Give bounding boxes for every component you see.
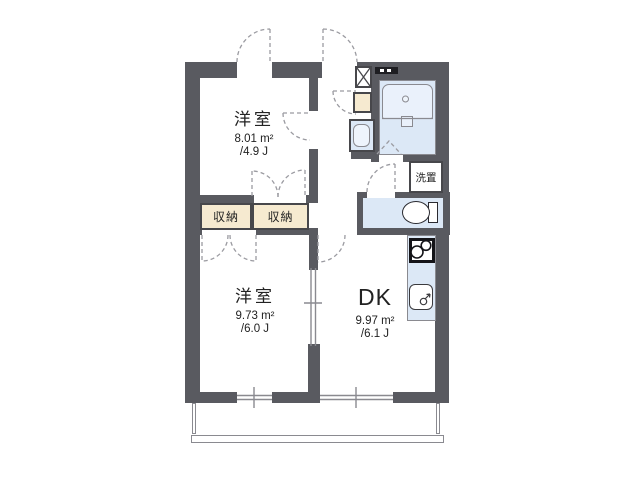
door-arc-closet-left-b bbox=[230, 235, 256, 261]
dk-area-jo: /6.1 J bbox=[318, 328, 432, 341]
bedroom-top-area-jo: /4.9 J bbox=[199, 146, 309, 159]
wall-bottom bbox=[185, 392, 449, 403]
bedroom-top-area-m2: 8.01 m² bbox=[199, 133, 309, 146]
pipe-space bbox=[355, 66, 372, 88]
bedroom-top-name: 洋室 bbox=[199, 110, 309, 129]
entry-door-opening-right bbox=[322, 62, 357, 78]
laundry-box: 洗置 bbox=[409, 161, 443, 193]
balcony-railing bbox=[191, 435, 444, 443]
door-arc-entry-right bbox=[323, 29, 357, 62]
door-arc-entry-left bbox=[237, 29, 270, 62]
floorplan-canvas: 洗置 収納 収納 洋室 8.01 m² /4.9 J 洋室 9.73 m² /6… bbox=[0, 0, 631, 480]
closet-left-label: 収納 bbox=[213, 208, 239, 225]
bedroom-bottom-area-m2: 9.73 m² bbox=[199, 310, 311, 323]
washbasin-bowl bbox=[353, 124, 370, 147]
wall-partition-lower bbox=[308, 344, 320, 392]
bedroom-top-label: 洋室 8.01 m² /4.9 J bbox=[199, 110, 309, 159]
closet-right: 収納 bbox=[252, 203, 309, 230]
dk-label: DK 9.97 m² /6.1 J bbox=[318, 285, 432, 341]
bathtub-handle bbox=[401, 116, 413, 127]
wall-partition-upper bbox=[309, 228, 318, 270]
door-arc-closet-right-b bbox=[278, 170, 305, 197]
bedroom-bottom-name: 洋室 bbox=[199, 287, 311, 306]
dk-door-opening bbox=[318, 228, 356, 235]
balcony-post-right bbox=[436, 403, 440, 434]
dk-name: DK bbox=[318, 285, 432, 311]
closet-right-door-opening bbox=[254, 195, 306, 203]
window-dk bbox=[320, 392, 393, 403]
door-arc-closet-left-a bbox=[202, 235, 228, 261]
entry-door-opening-left bbox=[237, 62, 272, 78]
toilet-bowl bbox=[402, 201, 430, 224]
dk-area-m2: 9.97 m² bbox=[318, 315, 432, 328]
shoe-cabinet bbox=[353, 92, 372, 113]
closet-left: 収納 bbox=[200, 203, 252, 230]
door-arc-dk bbox=[318, 235, 345, 262]
bedroom-bottom-label: 洋室 9.73 m² /6.0 J bbox=[199, 287, 311, 336]
door-arc-toilet bbox=[367, 164, 395, 192]
laundry-label: 洗置 bbox=[416, 170, 437, 185]
closet-right-label: 収納 bbox=[267, 208, 293, 225]
bathtub bbox=[382, 84, 433, 119]
bedroom-bottom-area-jo: /6.0 J bbox=[199, 323, 311, 336]
window-bedroom-bottom bbox=[237, 392, 272, 403]
door-arc-closet-right-a bbox=[252, 171, 278, 197]
stove bbox=[409, 238, 435, 263]
balcony-post-left bbox=[192, 403, 196, 434]
bedroom-top-door-opening bbox=[309, 111, 318, 149]
vent-icon bbox=[375, 67, 398, 74]
